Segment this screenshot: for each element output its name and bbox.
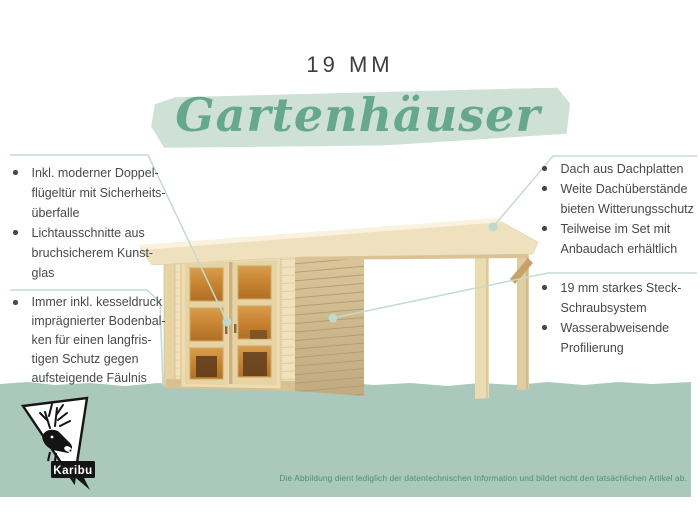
door-glass-pane [190,308,223,341]
feature-item: Inkl. moderner Doppel- flügeltür mit Sic… [11,163,173,223]
bullet-dot [13,170,18,175]
disclaimer-text: Die Abbildung dient lediglich der datent… [279,473,687,483]
feature-line: flügeltür mit Sicherheits- [32,183,166,203]
feature-line: Schraubsystem [561,298,682,318]
deer-eye [51,436,54,439]
feature-line: Weite Dachüberstände [561,179,694,199]
feature-line: tigen Schutz gegen [32,350,166,369]
feature-item: Immer inkl. kesseldruck imprägnierter Bo… [11,293,173,388]
leader-dot-side-wall [329,314,338,323]
feature-block-right-bottom: 19 mm starkes Steck- Schraubsystem Wasse… [540,278,700,358]
bullet-dot [13,300,18,305]
feature-item: Dach aus Dachplatten [540,159,700,179]
feature-item: Weite Dachüberstände bieten Witterungssc… [540,179,700,219]
feature-line: aufsteigende Fäulnis [32,369,166,388]
feature-line: imprägnierter Bodenbal- [32,312,166,331]
leader-dot-roof [489,223,498,232]
feature-line: Inkl. moderner Doppel- [32,163,166,183]
bullet-dot [13,230,18,235]
side-wall-planks [295,246,364,396]
bullet-dot [542,186,547,191]
garden-house-illustration [138,218,538,399]
category-title: Gartenhäuser [175,88,540,142]
feature-line: bieten Witterungsschutz [561,199,694,219]
interior-silhouette [243,352,267,376]
feature-block-left-bottom: Immer inkl. kesseldruck imprägnierter Bo… [11,293,173,388]
feature-line: Dach aus Dachplatten [561,159,684,179]
feature-line: glas [32,263,154,283]
feature-block-left-top: Inkl. moderner Doppel- flügeltür mit Sic… [11,163,173,283]
page-background: Karibu 19 MM Gartenhäuser Inkl. moderner… [0,0,700,525]
bullet-dot [542,166,547,171]
feature-line: 19 mm starkes Steck- [561,278,682,298]
feature-line: überfalle [32,203,166,223]
feature-line: Profilierung [561,338,670,358]
category-title-wrap: Gartenhäuser [8,84,700,144]
feature-item: Lichtausschnitte aus bruchsicherem Kunst… [11,223,173,283]
feature-item: Wasserabweisende Profilierung [540,318,700,358]
leader-dot-door [223,318,232,327]
feature-line: Immer inkl. kesseldruck [32,293,166,312]
door-glass-pane [238,266,271,299]
feature-line: Teilweise im Set mit [561,219,678,239]
door-glass-pane [190,268,223,301]
bullet-dot [542,226,547,231]
interior-silhouette [196,356,217,377]
feature-line: Anbaudach erhältlich [561,239,678,259]
brand-label: Karibu [53,465,92,477]
door-handle [234,324,237,333]
feature-block-right-top: Dach aus Dachplatten Weite Dachüberständ… [540,159,700,259]
bullet-dot [542,325,547,330]
feature-item: 19 mm starkes Steck- Schraubsystem [540,278,700,318]
interior-silhouette [250,330,267,339]
feature-line: Wasserabweisende [561,318,670,338]
thickness-title: 19 MM [0,52,700,78]
feature-line: ken für einen langfris- [32,331,166,350]
feature-line: Lichtausschnitte aus [32,223,154,243]
bullet-dot [542,285,547,290]
feature-item: Teilweise im Set mit Anbaudach erhältlic… [540,219,700,259]
feature-line: bruchsicherem Kunst- [32,243,154,263]
deer-nostril [70,450,72,452]
